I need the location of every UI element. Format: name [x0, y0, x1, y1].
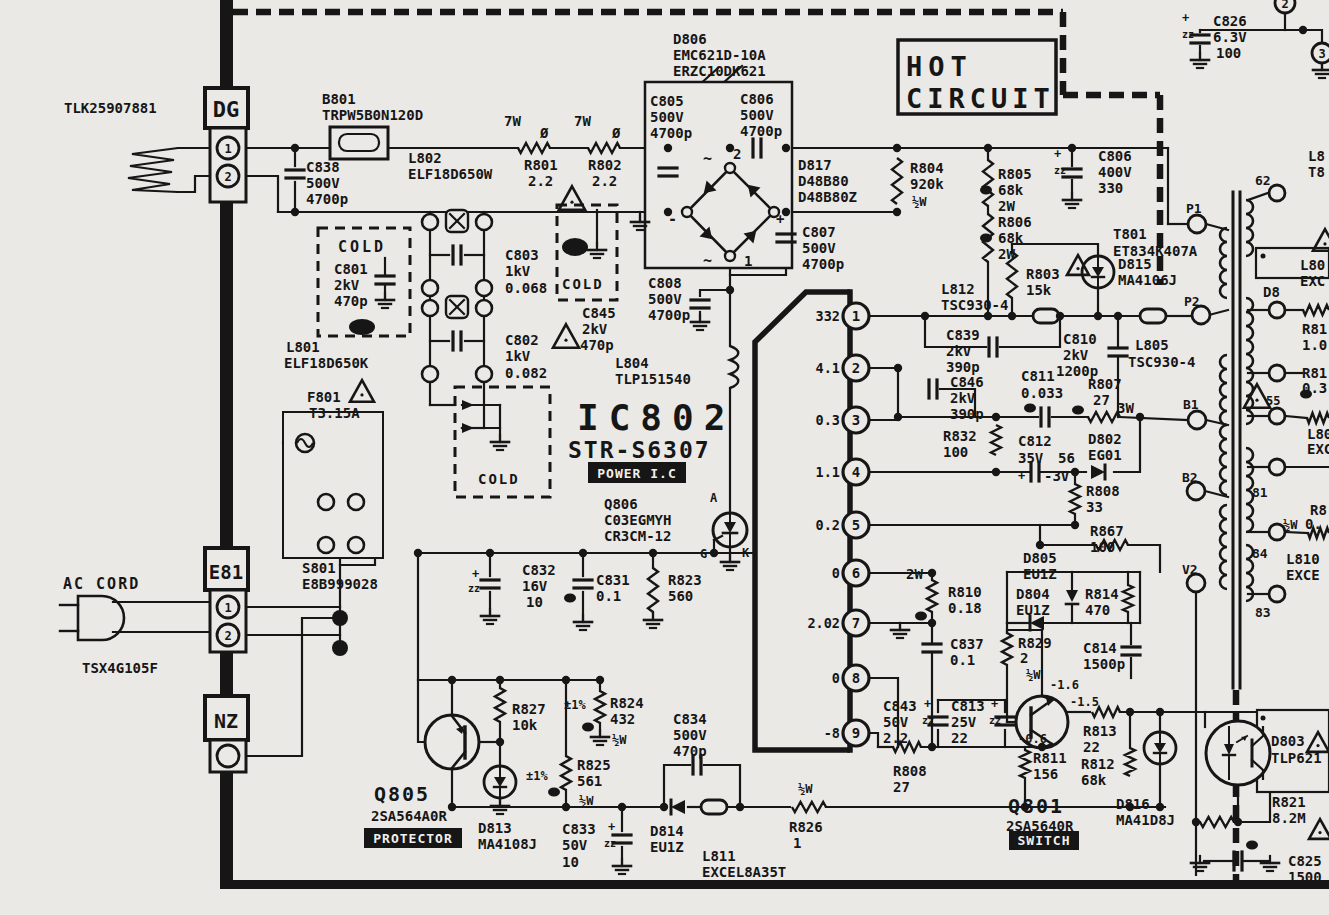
- mains-switch-box: [283, 412, 383, 558]
- schematic-label: C839: [946, 327, 980, 343]
- schematic-label: C837: [950, 636, 984, 652]
- schematic-label: T3.15A: [309, 405, 360, 421]
- inductor-l804: [730, 346, 738, 388]
- inverted-label: POWER I.C: [597, 466, 676, 481]
- schematic-label: 2.2: [883, 730, 908, 746]
- terminal-number: 2: [224, 629, 231, 643]
- marker-blob: [980, 234, 992, 243]
- schematic-label: 100: [1216, 45, 1241, 61]
- terminal-circle: [1269, 302, 1285, 318]
- schematic-label: 1500: [1288, 869, 1322, 885]
- terminal-label: 81: [1252, 485, 1268, 500]
- schematic-label: CIRCUIT: [906, 83, 1055, 114]
- resistor-symbol: [495, 688, 505, 722]
- schematic-label: DG: [213, 97, 240, 122]
- terminal-circle: [422, 214, 438, 230]
- schematic-label: COLD: [338, 238, 386, 256]
- resistor-symbol: [1002, 633, 1012, 665]
- wire: [1248, 193, 1268, 200]
- schematic-label: 27: [893, 779, 910, 795]
- wire: [1012, 244, 1098, 256]
- schematic-label: 470p: [580, 337, 614, 353]
- schematic-label: C801: [334, 261, 368, 277]
- schematic-label: C825: [1288, 853, 1322, 869]
- schematic-label: Q806: [604, 496, 638, 512]
- schematic-label: C812: [1018, 433, 1052, 449]
- schematic-label: R806: [998, 214, 1032, 230]
- schematic-label: ±1%: [526, 769, 548, 783]
- schematic-label: C813: [951, 698, 985, 714]
- schematic-label: ~: [703, 150, 712, 168]
- junction-dot: [664, 144, 672, 152]
- schematic-label: R813: [1083, 723, 1117, 739]
- schematic-label: -3V: [1044, 468, 1070, 484]
- terminal-circle: [1206, 721, 1270, 785]
- schematic-label: 470: [1085, 602, 1110, 618]
- wire: [1120, 417, 1188, 420]
- schematic-label: 2W: [998, 198, 1015, 214]
- schematic-label: 4700p: [306, 191, 348, 207]
- schematic-label: R832: [943, 428, 977, 444]
- junction-dot: [710, 549, 718, 557]
- schematic-label: 500V: [802, 240, 836, 256]
- schematic-label: Ø: [611, 125, 621, 141]
- junction-dot: [332, 610, 348, 626]
- resistor-symbol: [1303, 305, 1329, 315]
- warning-icon: [1076, 267, 1079, 270]
- schematic-label: 0.068: [505, 280, 547, 296]
- schematic-label: T8: [1308, 164, 1325, 180]
- schematic-label: 432: [610, 711, 635, 727]
- ic802-pin-number: 5: [852, 517, 860, 533]
- wire: [246, 176, 278, 212]
- resistor-symbol: [983, 160, 993, 206]
- schematic-label: R827: [512, 701, 546, 717]
- schematic-label: 100: [1090, 539, 1115, 555]
- terminal-label: 62: [1255, 173, 1271, 188]
- schematic-label: D8: [1263, 284, 1280, 300]
- junction-dot: [894, 413, 902, 421]
- resistor-symbol: [991, 425, 1001, 455]
- diode-symbol: [671, 800, 685, 814]
- junction-dot: [1156, 708, 1164, 716]
- warning-icon: [1316, 744, 1319, 747]
- junction-dot: [1136, 413, 1144, 421]
- schematic-label: C826: [1213, 13, 1247, 29]
- junction-dot: [782, 144, 790, 152]
- terminal-number: 1: [224, 601, 231, 615]
- schematic-label: D804: [1016, 586, 1050, 602]
- junction-dot: [579, 549, 587, 557]
- schematic-label: E8B999028: [302, 576, 378, 592]
- schematic-label: 470p: [334, 293, 368, 309]
- schematic-label: R812: [1081, 756, 1115, 772]
- terminal-label: B2: [1182, 470, 1198, 485]
- schematic-label: EU1Z: [650, 839, 684, 855]
- schematic-label: 500V: [740, 107, 774, 123]
- schematic-label: STR-S6307: [568, 437, 711, 463]
- schematic-label: ELF18D650W: [408, 166, 493, 182]
- wire: [664, 765, 690, 807]
- wire: [418, 553, 425, 742]
- marker-blob: [349, 319, 375, 335]
- schematic-label: C803: [505, 247, 539, 263]
- schematic-label: D816: [1116, 796, 1150, 812]
- schematic-label: ET834K407A: [1113, 243, 1198, 259]
- schematic-label: 1kV: [505, 348, 531, 364]
- schematic-label: ±1%: [564, 698, 586, 712]
- schematic-label: 2kV: [950, 390, 976, 406]
- schematic-label: -1.5: [1070, 695, 1099, 709]
- junction-dot: [486, 549, 494, 557]
- schematic-label: 2kV: [1063, 347, 1089, 363]
- schematic-label: 500V: [650, 109, 684, 125]
- warning-icon: [1323, 242, 1326, 245]
- schematic-label: C811: [1021, 368, 1055, 384]
- terminal-circle: [1188, 215, 1206, 233]
- junction-dot: [496, 738, 504, 746]
- schematic-label: 68k: [1081, 772, 1107, 788]
- schematic-label: D817: [798, 157, 832, 173]
- schematic-label: R802: [588, 157, 622, 173]
- schematic-label: R81: [1302, 321, 1327, 337]
- schematic-label: 2W: [906, 566, 923, 582]
- degauss-coil: [128, 148, 178, 192]
- schematic-label: 7W: [574, 113, 591, 129]
- schematic-label: 56: [1058, 450, 1075, 466]
- schematic-label: 470p: [673, 743, 707, 759]
- schematic-label: ½W: [798, 782, 813, 796]
- resistor-symbol: [1200, 817, 1234, 827]
- terminal-circle: [1269, 365, 1285, 381]
- schematic-label: EXCE: [1286, 567, 1320, 583]
- schematic-label: C03EGMYH: [604, 512, 671, 528]
- schematic-label: zz: [468, 583, 480, 594]
- schematic-label: 3W: [1117, 400, 1134, 416]
- schematic-label: AC CORD: [63, 575, 140, 593]
- warning-icon: [1255, 399, 1258, 402]
- arrow-icon: [462, 400, 474, 410]
- schematic-label: 6.3V: [1213, 29, 1247, 45]
- schematic-label: R826: [789, 819, 823, 835]
- diode-symbol: [1091, 465, 1105, 479]
- schematic-label: 68k: [998, 182, 1024, 198]
- diode-symbol: [1030, 616, 1044, 630]
- junction-dot: [1156, 803, 1164, 811]
- schematic-label: R81: [1302, 365, 1327, 381]
- wire: [178, 176, 210, 192]
- resistor-symbol: [1020, 750, 1030, 778]
- schematic-label: 10k: [512, 717, 538, 733]
- schematic-label: C832: [522, 562, 556, 578]
- schematic-label: 2W: [998, 246, 1015, 262]
- schematic-label: ½W: [1026, 668, 1041, 682]
- schematic-label: C808: [648, 275, 682, 291]
- warning-icon: [360, 393, 363, 396]
- schematic-label: R805: [998, 166, 1032, 182]
- schematic-label: 0.3: [1302, 380, 1327, 396]
- junction-dot: [1008, 312, 1016, 320]
- schematic-label: 920k: [910, 176, 944, 192]
- marker-blob: [562, 238, 588, 256]
- terminal-label: 84: [1252, 546, 1268, 561]
- junction-dot: [1261, 716, 1266, 721]
- schematic-label: TRPW5B0N120D: [322, 107, 423, 123]
- resistor-symbol: [595, 691, 605, 723]
- schematic-label: D48B80: [798, 173, 849, 189]
- junction-dot: [1261, 254, 1266, 259]
- wire: [1234, 790, 1270, 822]
- warning-icon: [1318, 831, 1321, 834]
- schematic-label: 2.2: [528, 173, 553, 189]
- junction-dot: [1036, 541, 1044, 549]
- schematic-label: C845: [582, 305, 616, 321]
- schematic-label: EG01: [1088, 447, 1122, 463]
- schematic-label: R867: [1090, 523, 1124, 539]
- schematic-label: C814: [1083, 640, 1117, 656]
- schematic-label: 27: [1093, 392, 1110, 408]
- junction-dot: [596, 676, 604, 684]
- schematic-label: COLD: [478, 471, 520, 487]
- schematic-label: L802: [408, 150, 442, 166]
- schematic-label: 500V: [673, 727, 707, 743]
- schematic-label: +: [776, 211, 784, 227]
- inductor-symbol: [1140, 309, 1166, 323]
- schematic-label: 4700p: [648, 307, 690, 323]
- junction-dot: [448, 803, 456, 811]
- warning-icon: [553, 324, 579, 347]
- schematic-label: 33: [1086, 499, 1103, 515]
- schematic-label: 25V: [951, 714, 977, 730]
- marker-blob: [564, 594, 576, 603]
- junction-dot: [984, 312, 992, 320]
- schematic-label: R811: [1033, 750, 1067, 766]
- junction-dot: [893, 208, 901, 216]
- resistor-symbol: [1070, 484, 1080, 514]
- schematic-label: B801: [322, 91, 356, 107]
- resistor-symbol: [1123, 585, 1133, 612]
- schematic-label: 50V: [883, 714, 909, 730]
- resistor-symbol: [792, 802, 826, 812]
- terminal-circle: [1269, 408, 1285, 424]
- schematic-label: C843: [883, 698, 917, 714]
- schematic-label: R821: [1272, 794, 1306, 810]
- schematic-label: 0.18: [948, 600, 982, 616]
- schematic-label: +: [1182, 11, 1189, 25]
- schematic-label: D802: [1088, 431, 1122, 447]
- schematic-label: -0.6: [1018, 732, 1047, 746]
- ic802-pin-number: 7: [852, 615, 860, 631]
- schematic-label: 1kV: [505, 263, 531, 279]
- schematic-label: C802: [505, 332, 539, 348]
- junction-dot: [921, 312, 929, 320]
- junction-dot: [928, 619, 936, 627]
- schematic-label: 2kV: [582, 321, 608, 337]
- resistor-symbol: [518, 143, 550, 153]
- terminal-circle: [1269, 185, 1285, 201]
- schematic-label: EMC621D-10A: [673, 47, 766, 63]
- schematic-label: TSC930-4: [1128, 354, 1195, 370]
- schematic-label: ERZC10DK621: [673, 63, 766, 79]
- schematic-label: L804: [615, 355, 649, 371]
- wire: [1286, 532, 1308, 533]
- schematic-label: D813: [478, 820, 512, 836]
- schematic-label: R807: [1088, 376, 1122, 392]
- marker-blob: [980, 186, 992, 195]
- marker-blob: [582, 723, 594, 732]
- resistor-symbol: [648, 568, 658, 612]
- junction-dot: [1192, 818, 1200, 826]
- wire: [869, 368, 898, 420]
- ic802-pin-voltage: 1.1: [816, 464, 840, 480]
- schematic-label: C807: [802, 224, 836, 240]
- schematic-label: 0.1: [950, 652, 975, 668]
- schematic-label: +: [1054, 147, 1061, 161]
- schematic-label: D814: [650, 823, 684, 839]
- terminal-circle: [476, 300, 492, 316]
- schematic-label: zz: [1182, 29, 1194, 40]
- schematic-label: TSC930-4: [941, 297, 1008, 313]
- warning-icon: [570, 201, 573, 204]
- schematic-label: F801: [307, 389, 341, 405]
- ic802-pin-voltage: 4.1: [816, 360, 840, 376]
- schematic-label: 0.1: [596, 588, 621, 604]
- junction-dot: [496, 676, 504, 684]
- schematic-label: 68k: [998, 230, 1024, 246]
- schematic-label: ½W: [912, 195, 927, 209]
- junction-dot: [984, 144, 992, 152]
- ic802-pin-voltage: 332: [816, 308, 840, 324]
- resistor-symbol: [588, 143, 620, 153]
- schematic-canvas: 133224.130.341.150.26072.02809-8TLK25907…: [0, 0, 1329, 915]
- winding-symbol: [1220, 228, 1227, 298]
- schematic-label: R814: [1085, 586, 1119, 602]
- schematic-label: 10: [526, 594, 543, 610]
- schematic-label: 22: [951, 730, 968, 746]
- terminal-circle: [318, 494, 334, 510]
- ic802-pin-number: 2: [852, 360, 860, 376]
- schematic-label: 0.033: [1021, 385, 1063, 401]
- schematic-label: Ø: [539, 125, 549, 141]
- schematic-label: 390p: [950, 406, 984, 422]
- schematic-label: 400V: [1098, 164, 1132, 180]
- resistor-symbol: [892, 158, 902, 204]
- junction-dot: [660, 803, 668, 811]
- marker-blob: [1024, 404, 1036, 413]
- schematic-label: 2kV: [334, 277, 360, 293]
- schematic-label: G: [700, 547, 707, 561]
- inverted-label: PROTECTOR: [373, 831, 452, 846]
- schematic-label: D805: [1023, 550, 1057, 566]
- ic802-pin-number: 3: [852, 412, 860, 428]
- terminal-number: 1: [224, 142, 231, 156]
- junction-dot: [1234, 818, 1242, 826]
- schematic-label: TLK25907881: [64, 100, 157, 116]
- terminal-circle: [1269, 459, 1285, 475]
- schematic-label: Q805: [374, 782, 430, 806]
- schematic-label: CR3CM-12: [604, 528, 671, 544]
- junction-dot: [992, 468, 1000, 476]
- wire: [1007, 630, 1042, 633]
- schematic-label: R825: [577, 757, 611, 773]
- schematic-label: 7W: [504, 113, 521, 129]
- schematic-label: 2.2: [592, 173, 617, 189]
- schematic-label: L812: [941, 281, 975, 297]
- wire: [246, 618, 340, 756]
- schematic-label: L801: [286, 339, 320, 355]
- junction-dot: [992, 413, 1000, 421]
- junction-dot: [894, 364, 902, 372]
- ic802-pin-voltage: 2.02: [807, 615, 840, 631]
- ic802-pin-number: 6: [852, 565, 860, 581]
- schematic-label: 4700p: [802, 256, 844, 272]
- schematic-label: 8.2M: [1272, 810, 1306, 826]
- terminal-number: 2: [1281, 0, 1288, 11]
- arrow-icon: [462, 423, 474, 433]
- schematic-label: MA41D8J: [1116, 812, 1175, 828]
- schematic-label: L80: [1300, 257, 1325, 273]
- schematic-label: 330: [1098, 180, 1123, 196]
- junction-dot: [726, 286, 734, 294]
- schematic-label: MA4106J: [1118, 272, 1177, 288]
- schematic-label: ELF18D650K: [284, 355, 369, 371]
- terminal-circle: [422, 366, 438, 382]
- schematic-label: L8: [1308, 148, 1325, 164]
- schematic-label: C810: [1063, 331, 1097, 347]
- schematic-label: 0.082: [505, 365, 547, 381]
- resistor-symbol: [1125, 748, 1135, 776]
- junction-dot: [562, 803, 570, 811]
- winding-symbol: [1220, 355, 1227, 495]
- terminal-label: P1: [1186, 201, 1202, 216]
- junction-dot: [1299, 26, 1307, 34]
- bottom-border-bar: [220, 880, 1329, 889]
- schematic-label: S801: [302, 560, 336, 576]
- schematic-label: R829: [1018, 635, 1052, 651]
- schematic-label: 156: [1033, 766, 1058, 782]
- ic802-pin-voltage: 0: [832, 670, 840, 686]
- schematic-label: L80: [1307, 426, 1329, 442]
- schematic-label: A: [710, 491, 718, 505]
- schematic-label: 390p: [946, 359, 980, 375]
- junction-dot: [649, 549, 657, 557]
- resistor-symbol: [927, 580, 937, 612]
- terminal-circle: [422, 280, 438, 296]
- marker-blob: [548, 788, 560, 797]
- warning-icon: [564, 339, 567, 342]
- wire: [1209, 310, 1228, 315]
- schematic-label: TLP621: [1271, 750, 1322, 766]
- schematic-label: 1500p: [1083, 656, 1125, 672]
- terminal-circle: [422, 300, 438, 316]
- terminal-label: 83: [1255, 605, 1271, 620]
- marker-blob: [1072, 406, 1084, 415]
- ic802-pin-voltage: 0.2: [816, 517, 840, 533]
- junction-dot: [291, 208, 299, 216]
- terminal-circle: [476, 214, 492, 230]
- schematic-label: 35V: [1018, 450, 1044, 466]
- junction-dot: [1056, 312, 1064, 320]
- inductor-symbol: [1033, 309, 1059, 323]
- junction-dot: [448, 676, 456, 684]
- schematic-label: R803: [1026, 266, 1060, 282]
- terminal-circle: [425, 715, 479, 769]
- warning-icon: [1309, 819, 1329, 839]
- schematic-label: C806: [740, 91, 774, 107]
- schematic-label: zz: [922, 715, 934, 726]
- schematic-label: C846: [950, 374, 984, 390]
- schematic-label: EU1Z: [1016, 602, 1050, 618]
